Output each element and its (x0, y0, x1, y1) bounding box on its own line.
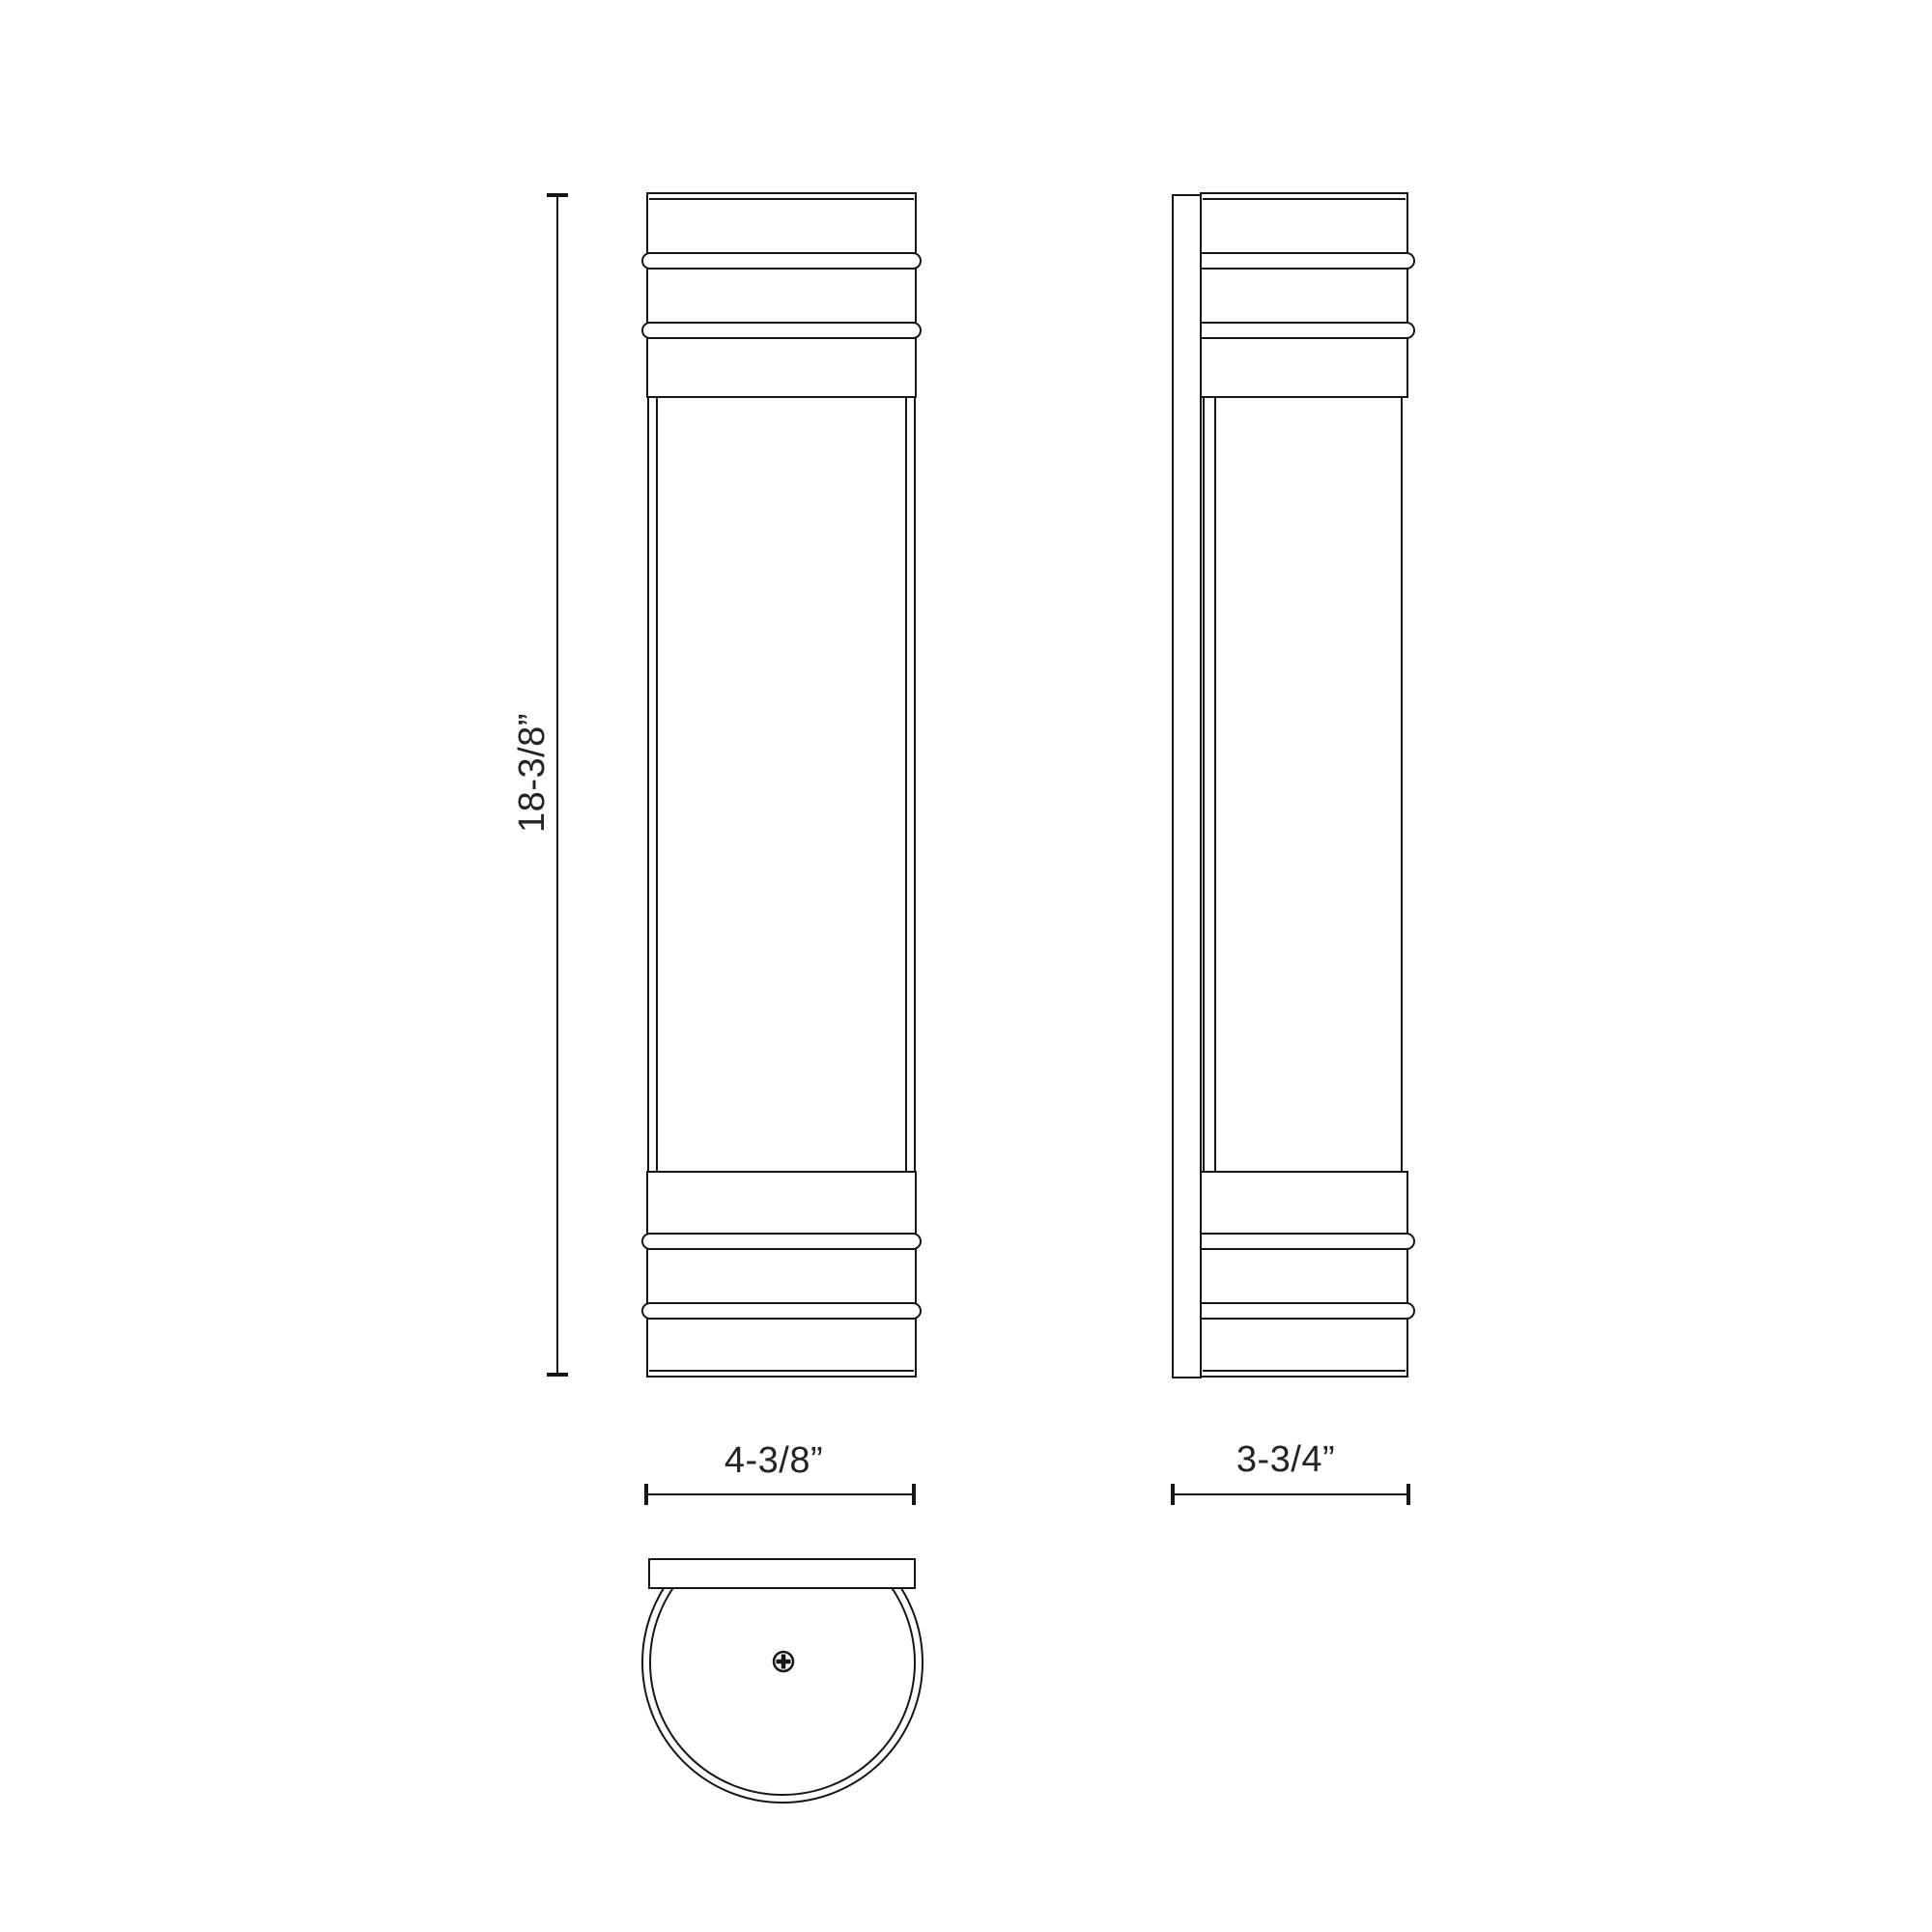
front-bottom-cap (646, 1318, 917, 1378)
side-wall-plate (1172, 194, 1202, 1378)
front-trim-band-3 (641, 1233, 922, 1250)
screw-icon (764, 1642, 803, 1681)
front-lower-section (646, 1248, 917, 1306)
height-dimension-tick-bottom (547, 1373, 568, 1377)
front-trim-band-2 (641, 322, 922, 339)
side-depth-tick-right (1406, 1484, 1410, 1505)
front-lower-flange (646, 1171, 917, 1235)
bottom-canopy-plate (648, 1558, 916, 1589)
front-width-tick-right (912, 1484, 916, 1505)
side-top-cap-inner-edge (1203, 198, 1406, 200)
front-upper-flange (646, 337, 917, 398)
front-top-cap-inner-edge (649, 198, 914, 200)
side-trim-band-1 (1200, 252, 1415, 270)
front-trim-band-4 (641, 1302, 922, 1320)
front-width-dimension-label: 4-3/8” (677, 1441, 870, 1480)
side-lower-section (1200, 1248, 1408, 1306)
side-top-cap (1200, 192, 1408, 254)
side-glass-inner-line (1214, 398, 1216, 1171)
side-glass-panel (1203, 396, 1403, 1173)
front-width-dimension-line (646, 1493, 915, 1495)
front-upper-section (646, 268, 917, 324)
side-upper-section (1200, 268, 1408, 324)
side-trim-band-2 (1200, 322, 1415, 339)
front-glass-inner-line-left (656, 398, 658, 1171)
front-glass-panel (647, 396, 916, 1173)
side-trim-band-4 (1200, 1302, 1415, 1320)
height-dimension-label: 18-3/8” (513, 676, 552, 869)
front-glass-inner-line-right (905, 398, 907, 1171)
side-depth-dimension-line (1173, 1493, 1408, 1495)
front-top-cap (646, 192, 917, 254)
spec-drawing-canvas: 18-3/8” 4-3/8” 3-3/4” (0, 0, 1932, 1932)
side-depth-dimension-label: 3-3/4” (1189, 1440, 1382, 1479)
height-dimension-line (556, 195, 558, 1375)
side-bottom-cap (1200, 1318, 1408, 1378)
front-bottom-cap-inner-edge (649, 1370, 914, 1372)
side-bottom-cap-inner-edge (1203, 1370, 1406, 1372)
front-trim-band-1 (641, 252, 922, 270)
side-upper-flange (1200, 337, 1408, 398)
side-lower-flange (1200, 1171, 1408, 1235)
side-trim-band-3 (1200, 1233, 1415, 1250)
